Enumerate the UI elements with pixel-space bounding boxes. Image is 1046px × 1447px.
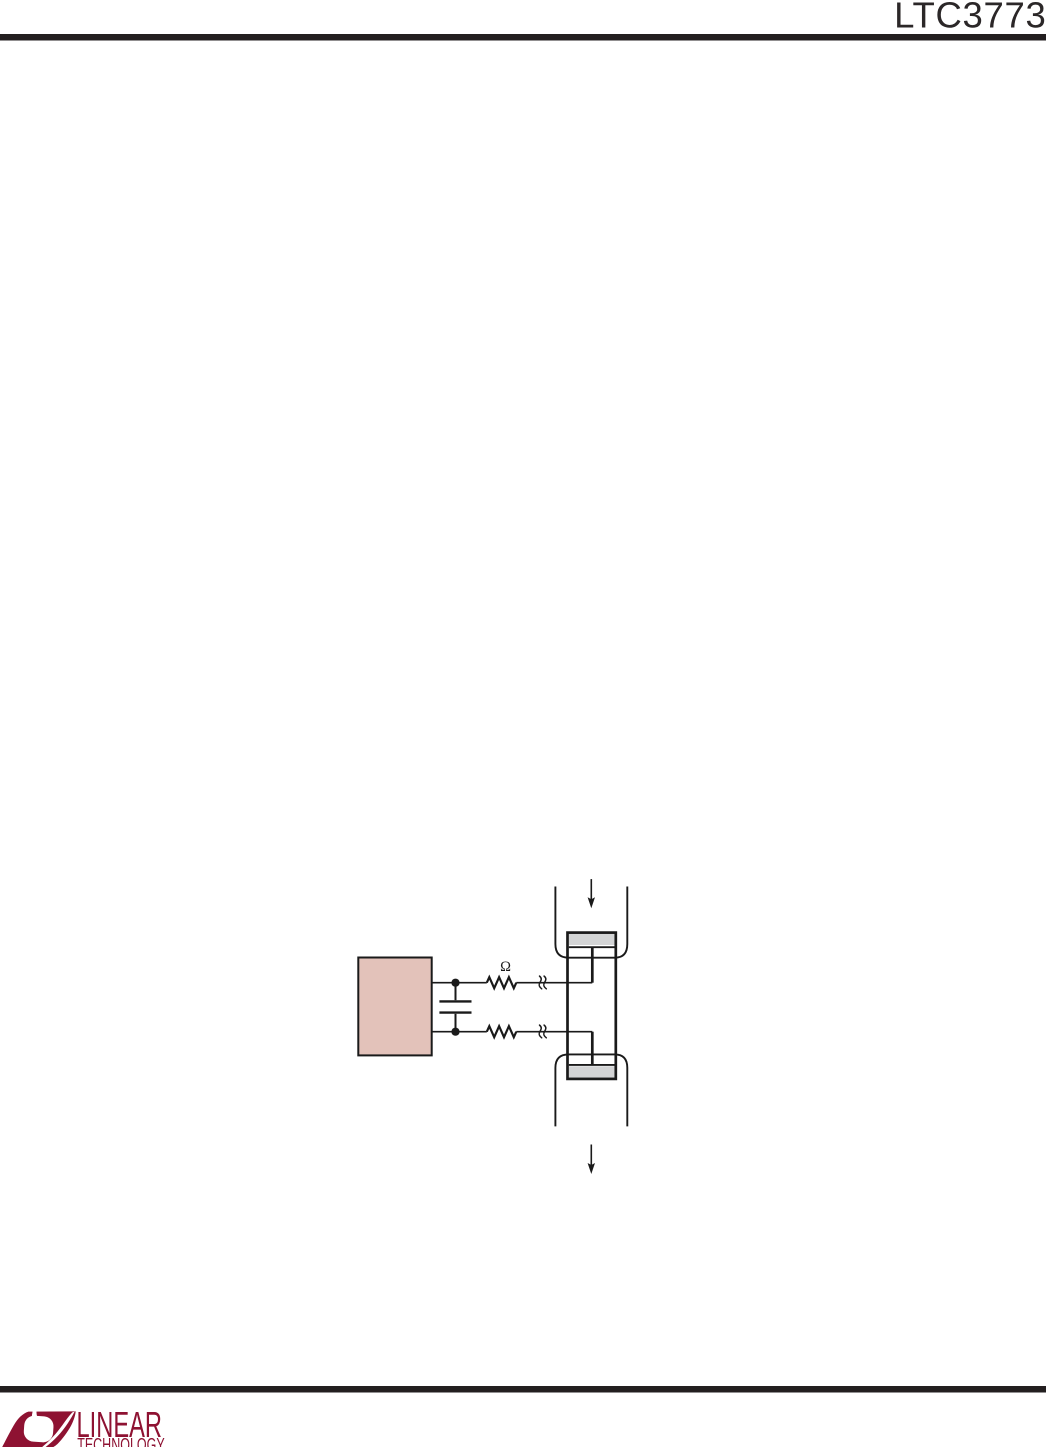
svg-text:TECHNOLOGY: TECHNOLOGY bbox=[77, 1435, 165, 1447]
svg-text:Ω: Ω bbox=[500, 959, 511, 975]
svg-text:LTC3773: LTC3773 bbox=[894, 0, 1046, 36]
